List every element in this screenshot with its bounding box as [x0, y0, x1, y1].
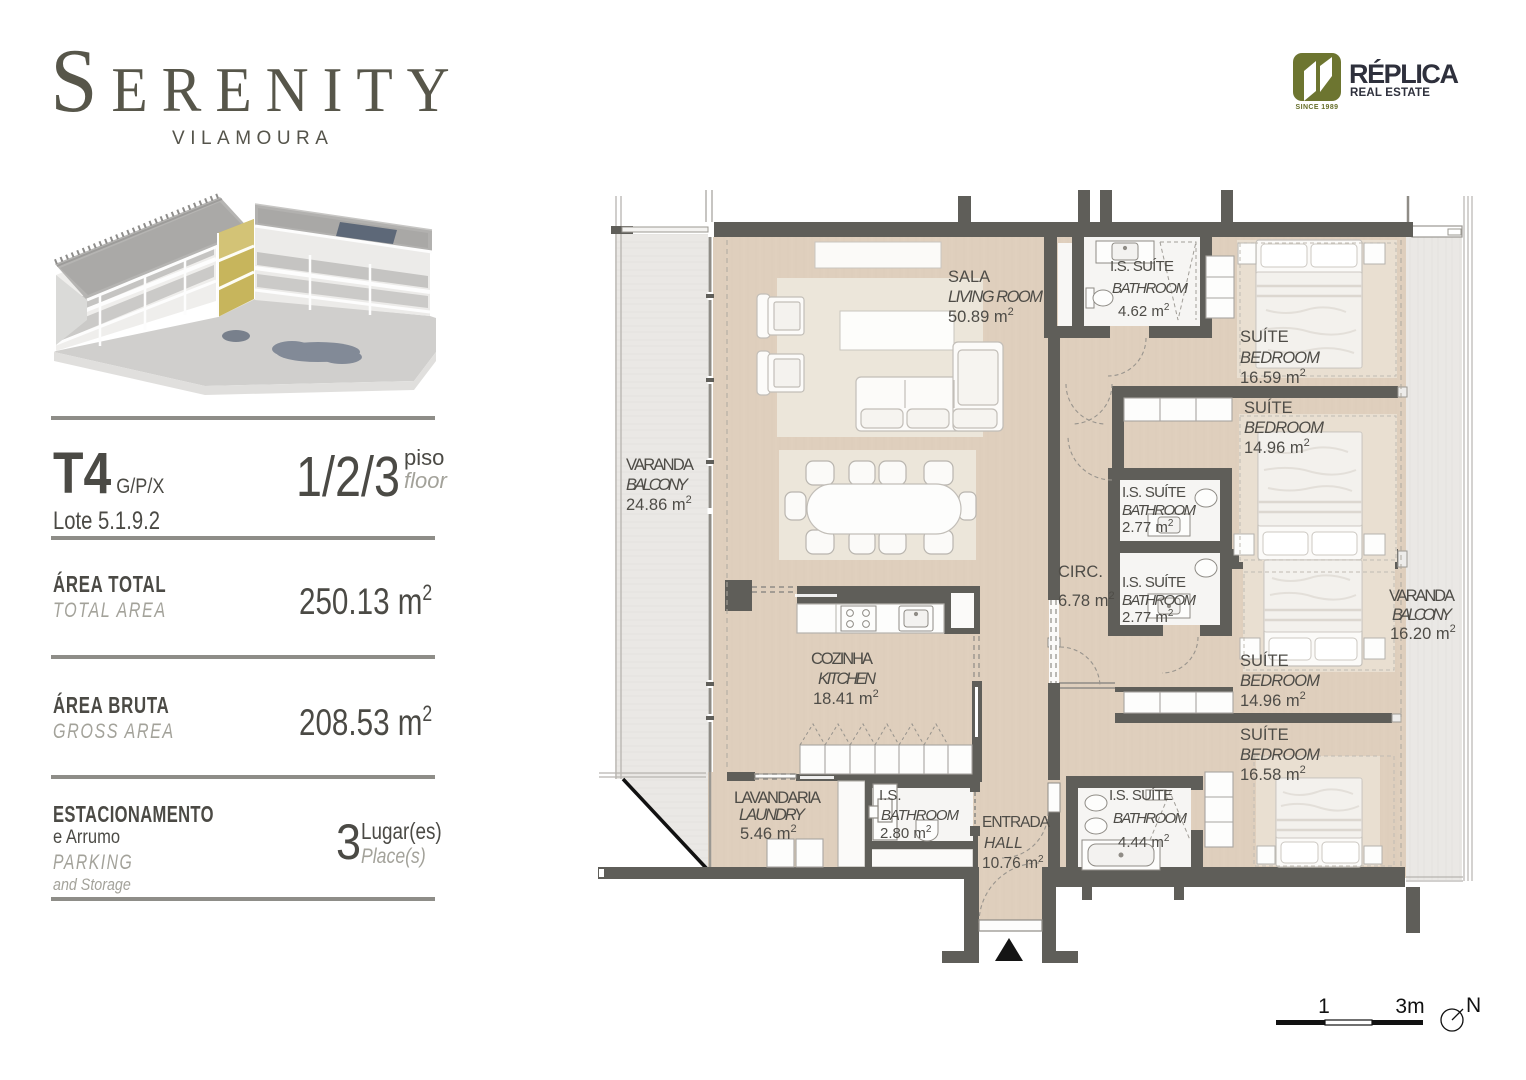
svg-text:BEDROOM: BEDROOM: [1240, 349, 1320, 367]
svg-text:I.S. SUÍTE: I.S. SUÍTE: [1109, 787, 1173, 804]
svg-text:50.89 m2: 50.89 m2: [948, 306, 1014, 326]
svg-text:16.58 m2: 16.58 m2: [1240, 764, 1306, 784]
svg-text:SALA: SALA: [948, 268, 990, 286]
svg-text:COZINHA: COZINHA: [811, 650, 873, 668]
svg-text:BALCONY: BALCONY: [1392, 606, 1453, 624]
svg-text:I.S.: I.S.: [879, 787, 902, 804]
svg-text:BATHROOM: BATHROOM: [1122, 502, 1197, 519]
svg-text:4.62 m2: 4.62 m2: [1118, 302, 1170, 320]
svg-text:2.80 m2: 2.80 m2: [880, 824, 932, 842]
svg-text:ENTRADA: ENTRADA: [982, 814, 1051, 831]
svg-text:4.44 m2: 4.44 m2: [1118, 833, 1170, 851]
svg-text:CIRC.: CIRC.: [1058, 563, 1103, 581]
svg-text:2.77 m2: 2.77 m2: [1122, 608, 1174, 626]
svg-text:LAVANDARIA: LAVANDARIA: [734, 789, 821, 807]
svg-text:24.86 m2: 24.86 m2: [626, 494, 692, 514]
svg-text:LAUNDRY: LAUNDRY: [739, 806, 806, 824]
svg-text:6.78 m2: 6.78 m2: [1058, 590, 1115, 610]
svg-text:HALL: HALL: [984, 835, 1023, 852]
svg-text:SUÍTE: SUÍTE: [1244, 398, 1293, 417]
svg-text:KITCHEN: KITCHEN: [818, 670, 876, 688]
svg-text:18.41 m2: 18.41 m2: [813, 688, 879, 708]
svg-text:16.20 m2: 16.20 m2: [1390, 623, 1456, 643]
svg-text:I.S. SUÍTE: I.S. SUÍTE: [1110, 258, 1174, 275]
svg-text:I.S. SUÍTE: I.S. SUÍTE: [1122, 574, 1186, 591]
svg-text:VARANDA: VARANDA: [626, 456, 694, 474]
svg-text:BATHROOM: BATHROOM: [1122, 592, 1197, 609]
svg-text:BALCONY: BALCONY: [626, 476, 689, 494]
svg-text:BEDROOM: BEDROOM: [1240, 672, 1320, 690]
svg-text:VARANDA: VARANDA: [1389, 587, 1455, 605]
svg-text:5.46 m2: 5.46 m2: [740, 823, 797, 843]
svg-text:BATHROOM: BATHROOM: [881, 807, 960, 824]
svg-text:14.96 m2: 14.96 m2: [1240, 690, 1306, 710]
svg-text:2.77 m2: 2.77 m2: [1122, 518, 1174, 536]
svg-text:BATHROOM: BATHROOM: [1112, 280, 1189, 297]
svg-text:16.59 m2: 16.59 m2: [1240, 367, 1306, 387]
svg-text:BEDROOM: BEDROOM: [1240, 746, 1320, 764]
svg-text:10.76 m2: 10.76 m2: [982, 854, 1044, 872]
svg-text:SUÍTE: SUÍTE: [1240, 725, 1289, 744]
svg-text:SUÍTE: SUÍTE: [1240, 651, 1289, 670]
svg-text:I.S. SUÍTE: I.S. SUÍTE: [1122, 484, 1186, 501]
svg-text:BATHROOM: BATHROOM: [1113, 810, 1188, 827]
svg-text:BEDROOM: BEDROOM: [1244, 419, 1324, 437]
svg-text:14.96 m2: 14.96 m2: [1244, 437, 1310, 457]
svg-text:SUÍTE: SUÍTE: [1240, 327, 1289, 346]
svg-text:LIVING ROOM: LIVING ROOM: [948, 288, 1043, 306]
